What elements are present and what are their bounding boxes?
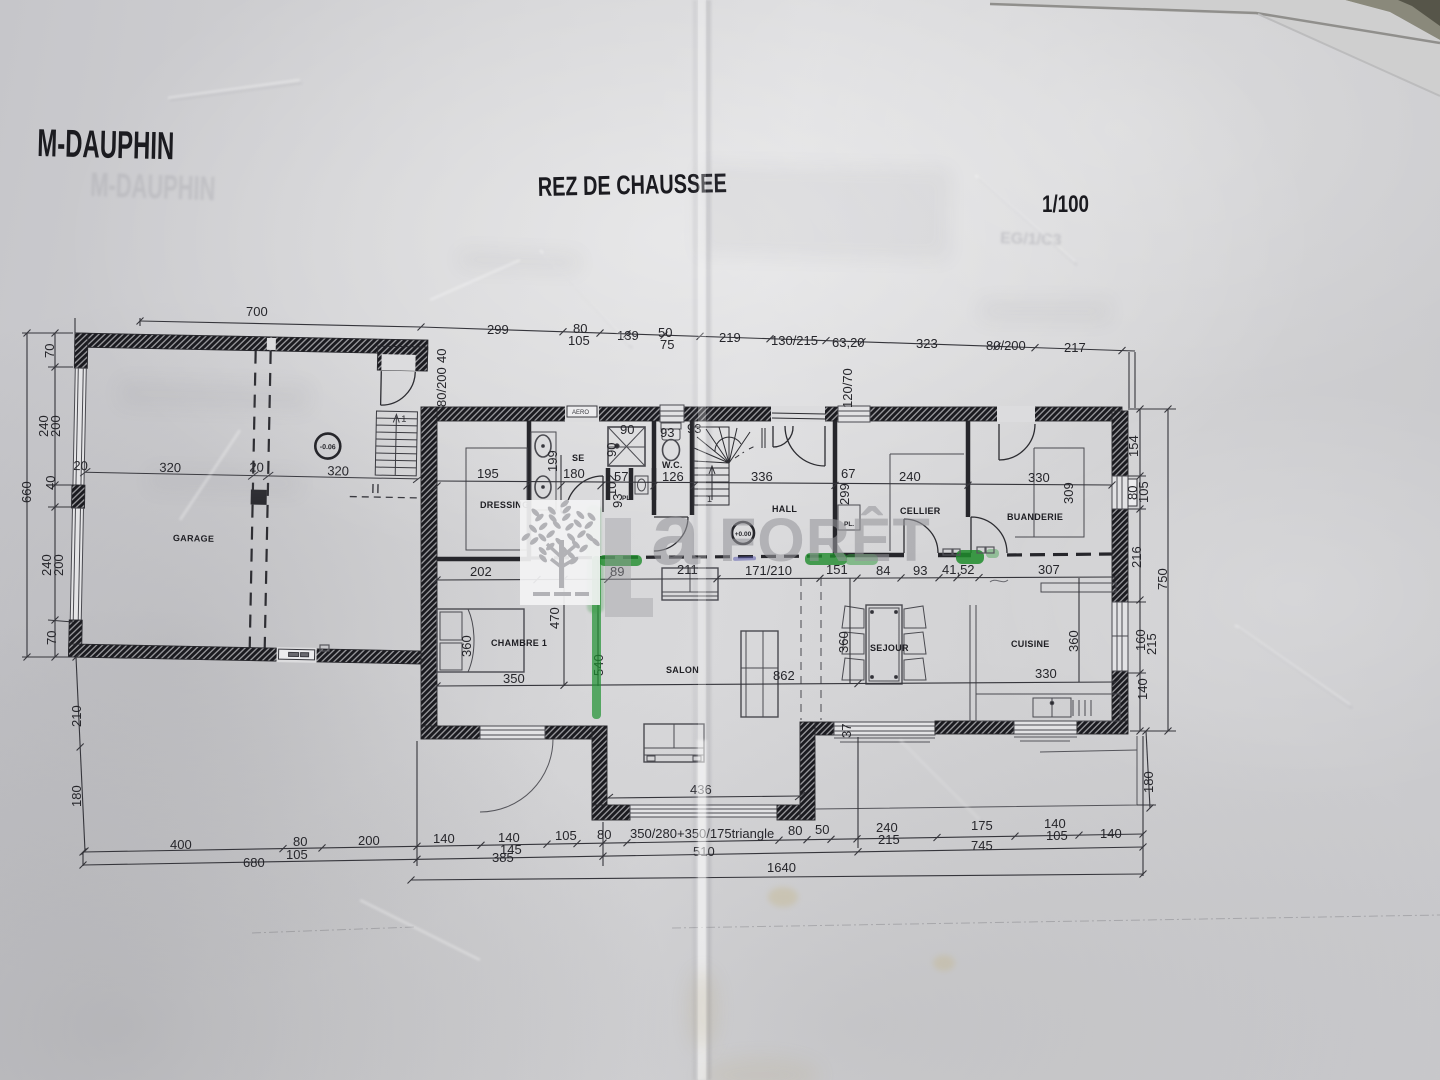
svg-text:105: 105 [1046, 828, 1068, 843]
svg-text:299: 299 [837, 483, 852, 505]
svg-text:105: 105 [568, 333, 590, 348]
svg-text:M-DAUPHIN: M-DAUPHIN [90, 166, 216, 208]
svg-text:660: 660 [19, 481, 34, 503]
svg-text:200: 200 [358, 833, 380, 848]
svg-text:336: 336 [751, 469, 773, 484]
svg-text:199: 199 [545, 450, 560, 472]
svg-text:180: 180 [563, 466, 585, 481]
svg-text:195: 195 [477, 466, 499, 481]
svg-text:80: 80 [597, 827, 611, 842]
svg-text:AERO: AERO [572, 410, 589, 416]
svg-text:307: 307 [1038, 562, 1060, 577]
svg-text:20: 20 [249, 460, 264, 475]
svg-text:240: 240 [899, 469, 921, 484]
svg-text:CUISINE: CUISINE [1011, 639, 1050, 649]
svg-text:EG/1/C3: EG/1/C3 [1000, 230, 1062, 249]
svg-text:90: 90 [620, 422, 634, 437]
svg-text:90: 90 [604, 443, 619, 457]
svg-text:862: 862 [773, 668, 795, 683]
svg-text:105: 105 [286, 847, 308, 862]
svg-text:-0.06: -0.06 [320, 444, 336, 451]
svg-text:40: 40 [43, 476, 58, 490]
svg-text:SEJOUR: SEJOUR [870, 643, 909, 653]
svg-text:745: 745 [971, 838, 993, 853]
svg-text:215: 215 [1144, 633, 1159, 655]
svg-text:93: 93 [610, 494, 625, 508]
svg-text:50: 50 [815, 822, 829, 837]
svg-text:80: 80 [788, 823, 802, 838]
svg-text:200: 200 [51, 554, 66, 576]
svg-text:750: 750 [1155, 568, 1170, 590]
svg-text:105: 105 [555, 828, 577, 843]
svg-text:330: 330 [1028, 470, 1050, 485]
svg-text:210: 210 [69, 705, 84, 727]
svg-text:400: 400 [170, 837, 192, 852]
svg-text:70: 70 [44, 631, 59, 645]
svg-text:93: 93 [660, 425, 674, 440]
svg-text:323: 323 [916, 336, 938, 351]
svg-text:330: 330 [1035, 666, 1057, 681]
svg-text:70: 70 [42, 344, 57, 358]
svg-text:200: 200 [48, 415, 63, 437]
svg-text:67: 67 [841, 466, 855, 481]
svg-text:37: 37 [839, 724, 854, 738]
svg-text:102: 102 [604, 474, 619, 496]
svg-text:202: 202 [470, 564, 492, 579]
svg-text:175: 175 [971, 818, 993, 833]
svg-text:360: 360 [459, 635, 474, 657]
svg-text:180: 180 [69, 785, 84, 807]
svg-text:GARAGE: GARAGE [173, 533, 215, 544]
svg-text:219: 219 [719, 330, 741, 345]
svg-text:140: 140 [433, 831, 455, 846]
svg-text:63,20: 63,20 [832, 335, 865, 350]
svg-text:SE: SE [572, 453, 585, 463]
svg-text:40: 40 [434, 349, 449, 363]
svg-text:140: 140 [1100, 826, 1122, 841]
svg-text:385: 385 [492, 850, 514, 865]
svg-text:360: 360 [836, 631, 851, 653]
svg-text:41,52: 41,52 [942, 562, 975, 577]
svg-text:320: 320 [327, 463, 349, 478]
svg-text:FORÊT: FORÊT [719, 506, 931, 574]
svg-text:126: 126 [662, 469, 684, 484]
svg-text:470: 470 [547, 607, 562, 629]
svg-text:BUANDERIE: BUANDERIE [1007, 512, 1063, 522]
svg-text:M-DAUPHIN: M-DAUPHIN [37, 122, 175, 168]
svg-text:130/215: 130/215 [771, 333, 818, 348]
svg-text:1/100: 1/100 [1042, 191, 1089, 218]
svg-text:CHAMBRE 1: CHAMBRE 1 [491, 638, 547, 648]
svg-text:217: 217 [1064, 340, 1086, 355]
svg-text:80/200: 80/200 [434, 367, 449, 407]
svg-text:120/70: 120/70 [840, 368, 855, 408]
svg-text:215: 215 [878, 832, 900, 847]
svg-text:80/200: 80/200 [986, 338, 1026, 353]
svg-text:216: 216 [1129, 546, 1144, 568]
svg-text:309: 309 [1061, 482, 1076, 504]
svg-text:180: 180 [1141, 771, 1156, 793]
svg-text:299: 299 [487, 322, 509, 337]
svg-text:700: 700 [246, 304, 268, 319]
svg-text:140: 140 [1135, 678, 1150, 700]
svg-text:154: 154 [1126, 435, 1141, 457]
svg-text:350: 350 [503, 671, 525, 686]
svg-text:680: 680 [243, 855, 265, 870]
svg-text:20: 20 [73, 458, 88, 473]
svg-text:105: 105 [1136, 481, 1151, 503]
svg-text:75: 75 [660, 337, 674, 352]
svg-text:1640: 1640 [767, 860, 796, 875]
svg-text:360: 360 [1066, 630, 1081, 652]
svg-text:1: 1 [401, 414, 406, 424]
